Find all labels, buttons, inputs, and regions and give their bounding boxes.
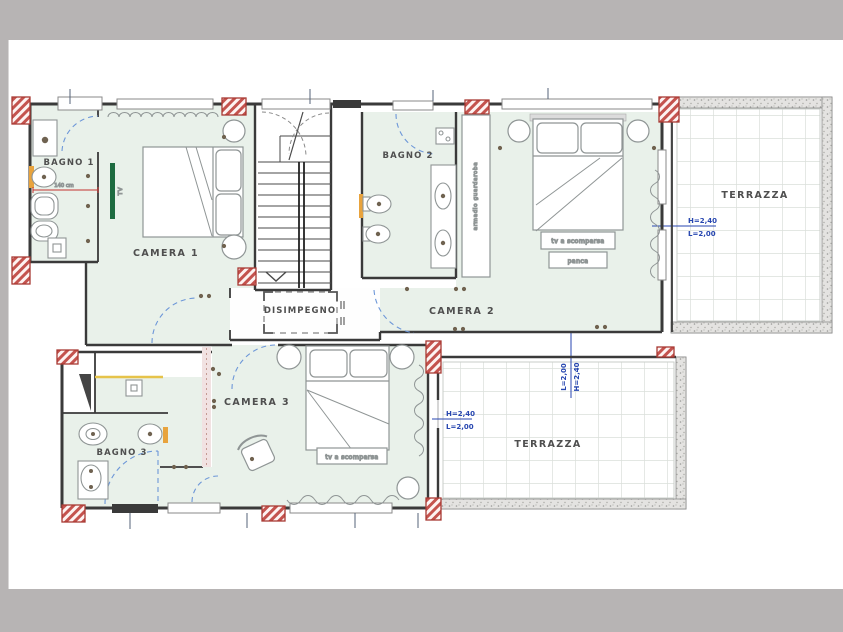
label-camera3: CAMERA 3 <box>224 397 290 408</box>
pillow <box>216 194 241 235</box>
pillow <box>581 123 622 153</box>
toilet-dot <box>42 175 46 179</box>
pillar <box>238 268 256 285</box>
pillar <box>222 98 246 115</box>
terrace-bottom-dim-top-h: H=2,40 <box>573 362 581 391</box>
pillar <box>12 257 30 284</box>
window-bottom-bagno3 <box>168 503 220 513</box>
label-disimpegno: DISIMPEGNO <box>264 306 336 316</box>
pillow <box>310 350 347 377</box>
tv-box-camera3-label: tv a scomparsa <box>325 454 378 461</box>
terrace-bottom-dim-top-l: L=2,00 <box>560 363 568 391</box>
label-bagno2: BAGNO 2 <box>383 151 434 161</box>
tv-box-camera2-label: tv a scomparsa <box>551 238 604 245</box>
terrace-bottom-label: TERRAZZA <box>514 439 581 450</box>
sink-dot <box>441 241 445 245</box>
tv-unit-camera1 <box>110 163 115 219</box>
bidet-dot <box>377 202 381 206</box>
pillar <box>262 506 285 521</box>
toilet-dot <box>376 232 380 236</box>
pillow <box>216 150 241 191</box>
label-bagno1: BAGNO 1 <box>44 158 95 168</box>
terrace-bottom-parapet-right <box>676 357 686 509</box>
pillow <box>350 350 387 377</box>
sink-dot <box>89 485 93 489</box>
shower-head-box <box>436 128 454 144</box>
terrace-top-parapet-right <box>822 97 832 333</box>
shower-wedge <box>79 374 91 411</box>
label-camera2: CAMERA 2 <box>429 306 495 317</box>
screenshot-root: TERRAZZA H=2,40 L=2,00 TERRAZZA H=2,40 L… <box>0 0 843 632</box>
label-camera1: CAMERA 1 <box>133 248 199 259</box>
window-top-bagno1 <box>58 97 102 110</box>
window-top-camera1 <box>117 99 213 109</box>
terrace-top-tiles <box>677 109 820 321</box>
side-table <box>397 477 419 499</box>
vanity-dot <box>42 137 48 143</box>
terrace-bottom-parapet-bottom <box>438 499 686 509</box>
pillar <box>659 97 679 122</box>
floor-plan-svg: TERRAZZA H=2,40 L=2,00 TERRAZZA H=2,40 L… <box>0 0 843 632</box>
entry-threshold-top <box>333 100 361 108</box>
room-bagno3-shower-strip <box>95 377 205 413</box>
terrace-top-dim-h: H=2,40 <box>688 217 717 225</box>
room-stairwell <box>258 104 331 290</box>
terrace-bottom: TERRAZZA H=2,40 L=2,00 H=2,40 L=2,00 <box>432 332 686 509</box>
pillar <box>62 505 85 522</box>
terrace-bottom-dim-left-l: L=2,00 <box>446 423 474 431</box>
wardrobe-label: armadio guardaroba <box>473 162 479 231</box>
pillar <box>57 350 78 364</box>
pillar <box>12 97 30 124</box>
shower-box <box>48 238 66 258</box>
drain-box <box>126 380 142 396</box>
terrace-top: TERRAZZA H=2,40 L=2,00 <box>652 97 832 333</box>
sink-dot <box>441 194 445 198</box>
terrace-bottom-tiles <box>443 362 674 498</box>
window-top-camera2 <box>502 99 652 109</box>
nightstand <box>390 345 414 369</box>
tv-label-camera1: TV <box>118 187 124 197</box>
terrace-bottom-dim-left-h: H=2,40 <box>446 410 475 418</box>
nightstand <box>223 120 245 142</box>
nightstand <box>627 120 649 142</box>
terrace-top-dim-l: L=2,00 <box>688 230 716 238</box>
wall-partition-pink <box>202 347 211 467</box>
toilet-dot <box>91 432 95 436</box>
pillar <box>465 100 489 114</box>
pillow <box>537 123 578 153</box>
accent-orange <box>163 427 168 443</box>
nightstand <box>277 345 301 369</box>
pillar <box>657 347 674 357</box>
sink-dot <box>89 469 93 473</box>
terrace-top-label: TERRAZZA <box>721 190 788 201</box>
threshold-bottom <box>112 504 158 513</box>
nightstand <box>508 120 530 142</box>
window-top-stairwell <box>262 99 330 109</box>
dim-140cm: 140 cm <box>54 183 73 189</box>
bench-camera2-label: panca <box>568 258 589 265</box>
pillar <box>426 498 441 520</box>
label-bagno3: BAGNO 3 <box>97 448 148 458</box>
terrace-top-parapet-top <box>671 97 832 108</box>
terrace-top-parapet-bottom <box>671 322 832 333</box>
accent-orange <box>359 194 363 218</box>
bidet-dot <box>148 432 152 436</box>
window-top-bagno2 <box>393 101 433 110</box>
pillar <box>426 341 441 373</box>
